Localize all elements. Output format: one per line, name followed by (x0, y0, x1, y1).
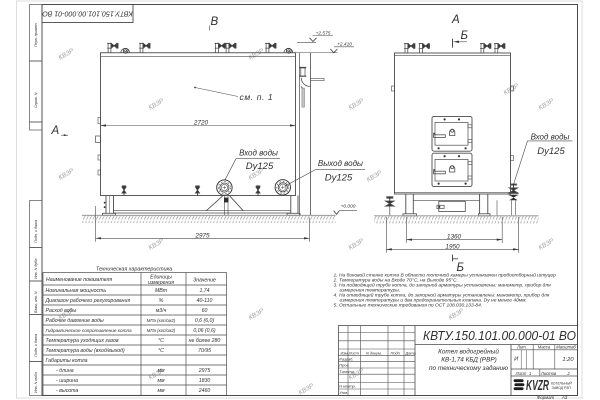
svg-text:Гидравлическое сопротивление к: Гидравлическое сопротивление котла (46, 328, 133, 333)
svg-text:+2.410: +2.410 (337, 41, 352, 47)
svg-text:Инв. N подл.: Инв. N подл. (34, 371, 38, 393)
svg-text:2460: 2460 (198, 388, 211, 394)
svg-text:70/95: 70/95 (198, 348, 211, 354)
svg-text:Разраб.: Разраб. (339, 356, 353, 361)
svg-text:- длина: - длина (56, 368, 74, 374)
svg-text:2975: 2975 (198, 368, 211, 374)
svg-text:- ширина: - ширина (56, 378, 78, 384)
svg-text:40-110: 40-110 (197, 298, 213, 304)
svg-text:Расход воды: Расход воды (46, 308, 77, 314)
svg-text:мм: мм (157, 368, 165, 374)
svg-text:Температура воды (вход/выход): Температура воды (вход/выход) (46, 348, 125, 354)
svg-text:Значение: Значение (193, 277, 216, 283)
svg-text:мм: мм (157, 378, 165, 384)
svg-text:Б: Б (457, 262, 465, 274)
svg-text:1. На боковой стенке котла В: 1. На боковой стенке котла В области топ… (334, 272, 557, 279)
svg-text:Н.контр.: Н.контр. (339, 384, 355, 389)
svg-text:Листов: Листов (540, 371, 557, 376)
svg-text:Наименование показателя: Наименование показателя (46, 277, 112, 283)
svg-text:0,06 (0,6): 0,06 (0,6) (193, 328, 215, 334)
svg-text:°С: °С (158, 338, 164, 344)
svg-text:Лит.: Лит. (516, 345, 527, 350)
svg-text:Перв. примен.: Перв. примен. (34, 22, 38, 47)
svg-text:Подп. и дата: Подп. и дата (34, 334, 38, 357)
svg-text:60: 60 (202, 308, 208, 314)
svg-text:м3/ч: м3/ч (156, 308, 167, 314)
svg-text:А3: А3 (561, 395, 568, 400)
svg-text:Лист: Лист (515, 371, 527, 376)
svg-text:Б: Б (461, 30, 469, 42)
svg-text:Диапазон рабочего регулировани: Диапазон рабочего регулирования (45, 298, 131, 304)
svg-text:Подп.: Подп. (391, 351, 401, 356)
svg-text:1,74: 1,74 (199, 288, 209, 294)
svg-text:Номинальная мощность: Номинальная мощность (46, 288, 107, 294)
svg-text:Dy125: Dy125 (246, 161, 274, 172)
svg-text:Формат: Формат (537, 395, 555, 400)
svg-text:КВТУ.150.101.00.000-01 ВО: КВТУ.150.101.00.000-01 ВО (42, 10, 133, 18)
svg-text:КВ-1,74 КБД (РВР): КВ-1,74 КБД (РВР) (441, 356, 496, 363)
svg-text:1950: 1950 (445, 243, 460, 250)
svg-text:1360: 1360 (447, 234, 462, 241)
svg-text:КОТЕЛЬНЫЙ: КОТЕЛЬНЫЙ (551, 381, 572, 385)
svg-text:1: 1 (529, 371, 531, 376)
svg-text:1830: 1830 (199, 378, 211, 384)
svg-text:не более 280: не более 280 (189, 338, 221, 344)
svg-text:измерения: измерения (148, 280, 174, 286)
svg-text:Температура уходящих газов: Температура уходящих газов (46, 338, 119, 344)
svg-text:+0.000: +0.000 (341, 203, 356, 209)
svg-text:А: А (51, 125, 60, 137)
svg-text:МПа (кгс/см2): МПа (кгс/см2) (147, 328, 176, 333)
svg-text:- высота: - высота (56, 388, 78, 394)
svg-text:по техническому заданию: по техническому заданию (429, 364, 508, 372)
svg-text:КВТУ.150.101.00.000-01 ВО: КВТУ.150.101.00.000-01 ВО (423, 328, 576, 343)
svg-text:Техническая характеристика: Техническая характеристика (96, 267, 172, 273)
svg-text:Вход воды: Вход воды (239, 148, 278, 157)
svg-text:Dy125: Dy125 (537, 146, 565, 157)
svg-text:Утв.: Утв. (339, 390, 348, 395)
svg-text:Изм.Лист: Изм.Лист (341, 351, 360, 356)
svg-text:Пров.: Пров. (339, 363, 349, 368)
svg-text:Масса: Масса (538, 345, 551, 350)
svg-text:см. п. 1: см. п. 1 (240, 92, 274, 102)
svg-text:%: % (159, 298, 164, 304)
svg-text:Dy125: Dy125 (325, 173, 353, 184)
svg-text:Выход воды: Выход воды (318, 159, 363, 168)
svg-text:2975: 2975 (194, 232, 210, 239)
svg-text:Инв. N дубл.: Инв. N дубл. (34, 258, 38, 279)
svg-text:5. Остальные технические треб: 5. Остальные технические требования по О… (334, 302, 483, 308)
svg-text:Габариты котла: Габариты котла (46, 358, 88, 364)
svg-text:Взам. инв. N: Взам. инв. N (34, 291, 38, 313)
svg-text:N докум.: N докум. (366, 351, 382, 356)
svg-text:Т.контр.: Т.контр. (339, 369, 355, 374)
svg-text:МВт: МВт (155, 288, 168, 294)
svg-text:Масштаб: Масштаб (556, 345, 576, 350)
svg-text:Вход воды: Вход воды (531, 133, 570, 142)
svg-text:ЗАВОД РЭП: ЗАВОД РЭП (552, 386, 572, 390)
svg-text:А: А (451, 14, 460, 26)
svg-text:°С: °С (158, 348, 164, 354)
svg-text:1:20: 1:20 (562, 357, 574, 363)
svg-text:МПа (кгс/см2): МПа (кгс/см2) (147, 318, 176, 323)
svg-text:В: В (211, 16, 219, 28)
svg-text:Подп. и дата: Подп. и дата (34, 220, 38, 243)
svg-text:Рабочее давление воды: Рабочее давление воды (46, 318, 104, 324)
svg-text:2720: 2720 (193, 120, 209, 127)
svg-text:Котел водогрейный: Котел водогрейный (438, 347, 499, 355)
svg-text:мм: мм (157, 388, 165, 394)
svg-text:Справ. N: Справ. N (34, 92, 38, 108)
svg-text:Дата: Дата (405, 351, 417, 356)
svg-text:0,6 (6,0): 0,6 (6,0) (195, 318, 215, 324)
svg-text:KVZR: KVZR (526, 378, 549, 394)
